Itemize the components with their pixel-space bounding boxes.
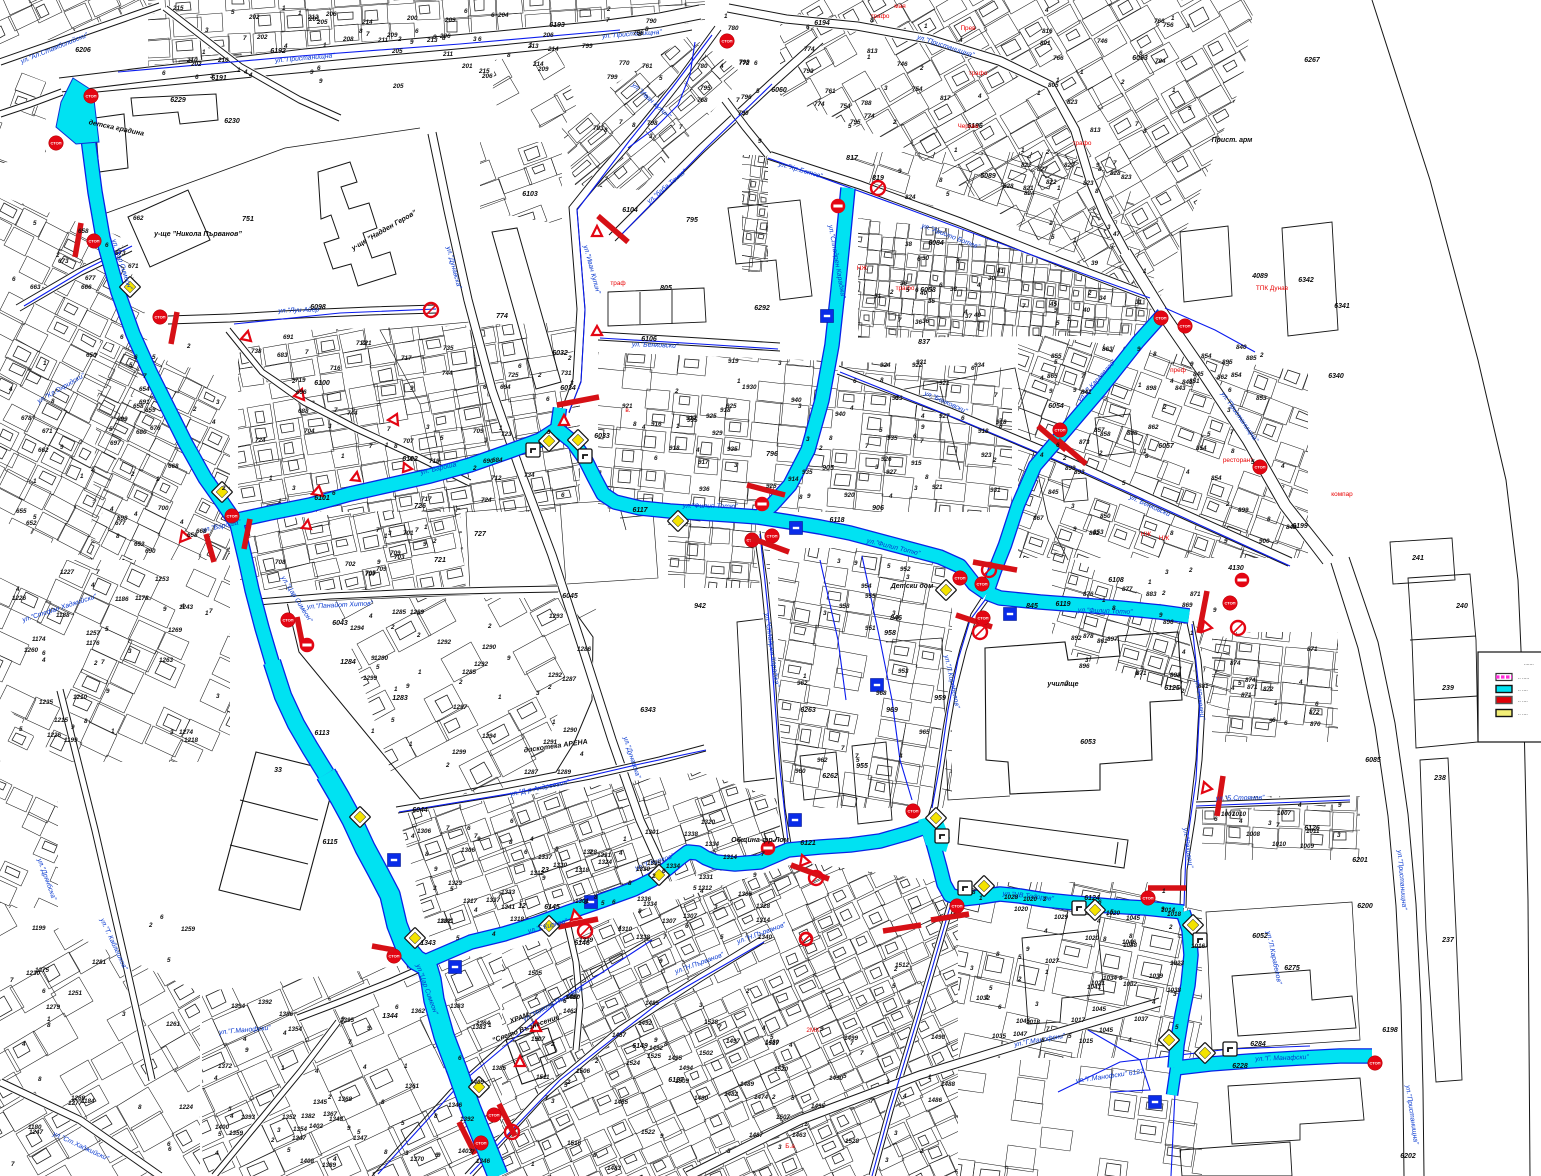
svg-text:798: 798 xyxy=(739,59,750,66)
svg-text:796: 796 xyxy=(766,451,778,458)
svg-text:8: 8 xyxy=(604,127,608,134)
svg-text:2: 2 xyxy=(55,252,60,259)
svg-text:СТОП: СТОП xyxy=(766,534,777,539)
svg-text:4: 4 xyxy=(8,386,13,393)
svg-text:6033: 6033 xyxy=(594,433,610,440)
svg-text:СТОП: СТОП xyxy=(88,239,99,244)
svg-text:1: 1 xyxy=(1171,15,1175,22)
svg-text:211: 211 xyxy=(442,51,454,58)
svg-text:761: 761 xyxy=(825,88,836,95)
svg-text:6034: 6034 xyxy=(560,385,576,392)
svg-text:690: 690 xyxy=(145,548,156,555)
svg-text:654: 654 xyxy=(139,386,150,393)
svg-text:2: 2 xyxy=(919,65,924,72)
svg-text:СТОП: СТОП xyxy=(1254,465,1265,470)
svg-text:697: 697 xyxy=(110,440,121,447)
svg-text:3: 3 xyxy=(649,133,653,140)
svg-text:компар: компар xyxy=(1331,491,1353,498)
svg-text:5: 5 xyxy=(756,88,760,95)
svg-text:6263: 6263 xyxy=(800,707,816,714)
svg-text:СТОП: СТОП xyxy=(977,616,988,621)
svg-text:1: 1 xyxy=(156,476,160,483)
svg-text:ресторант: ресторант xyxy=(1223,457,1253,464)
svg-text:774: 774 xyxy=(804,46,815,53)
svg-text:6101: 6101 xyxy=(314,495,330,502)
svg-text:239: 239 xyxy=(1441,685,1454,692)
svg-text:6044: 6044 xyxy=(412,807,428,814)
svg-text:6343: 6343 xyxy=(640,707,656,714)
svg-text:756: 756 xyxy=(1163,22,1174,29)
svg-text:1: 1 xyxy=(237,67,241,74)
svg-text:215: 215 xyxy=(172,5,184,12)
svg-text:НЖ: НЖ xyxy=(1141,531,1152,538)
svg-text:Детски дом: Детски дом xyxy=(890,582,934,590)
svg-text:6113: 6113 xyxy=(314,730,329,737)
svg-text:6084: 6084 xyxy=(928,240,944,247)
svg-text:8: 8 xyxy=(638,31,642,38)
svg-text:845: 845 xyxy=(1026,603,1038,610)
svg-text:795: 795 xyxy=(700,85,711,92)
svg-text:816: 816 xyxy=(1042,28,1053,35)
svg-text:5: 5 xyxy=(129,362,133,369)
svg-text:33: 33 xyxy=(274,767,282,774)
svg-text:СТОП: СТОП xyxy=(1179,324,1190,329)
svg-text:6043: 6043 xyxy=(332,620,348,627)
svg-text:4: 4 xyxy=(977,93,982,100)
svg-text:2: 2 xyxy=(130,471,135,478)
svg-text:ТПК Дунав: ТПК Дунав xyxy=(1256,285,1289,292)
svg-text:училище: училище xyxy=(1046,681,1078,688)
svg-text:НЖ: НЖ xyxy=(857,265,868,272)
svg-text:Черква: Черква xyxy=(957,123,978,130)
svg-text:6292: 6292 xyxy=(754,305,770,312)
svg-text:6085: 6085 xyxy=(1365,757,1381,764)
svg-text:768: 768 xyxy=(697,97,708,104)
svg-text:7: 7 xyxy=(243,35,247,42)
svg-text:8: 8 xyxy=(645,26,649,33)
svg-text:8: 8 xyxy=(116,533,120,540)
svg-text:6341: 6341 xyxy=(1334,303,1350,310)
svg-text:795: 795 xyxy=(850,119,861,126)
svg-text:6121: 6121 xyxy=(800,840,816,847)
svg-text:6100: 6100 xyxy=(314,380,330,387)
svg-text:652: 652 xyxy=(26,520,37,527)
svg-text:4: 4 xyxy=(248,72,253,79)
svg-text:4: 4 xyxy=(109,506,114,513)
svg-text:2: 2 xyxy=(221,485,226,492)
svg-text:6032: 6032 xyxy=(552,350,568,357)
svg-text:202: 202 xyxy=(248,14,260,21)
svg-text:7: 7 xyxy=(619,119,623,126)
svg-text:СТОП: СТОП xyxy=(976,582,987,587)
svg-text:5: 5 xyxy=(109,426,113,433)
svg-text:6057: 6057 xyxy=(1158,443,1175,450)
svg-text:9: 9 xyxy=(310,69,314,76)
svg-text:СТОП: СТОП xyxy=(721,39,732,44)
svg-text:1: 1 xyxy=(867,54,871,61)
svg-text:700: 700 xyxy=(158,505,169,512)
svg-text:5: 5 xyxy=(231,9,235,16)
svg-text:906: 906 xyxy=(872,505,884,512)
svg-text:9: 9 xyxy=(410,39,414,46)
svg-text:СТОП: СТОП xyxy=(488,1113,499,1118)
svg-text:817: 817 xyxy=(940,95,951,102)
svg-text:6193: 6193 xyxy=(549,22,565,29)
svg-text:6: 6 xyxy=(162,70,166,77)
svg-text:655: 655 xyxy=(16,508,27,515)
svg-text:3: 3 xyxy=(884,85,888,92)
svg-text:673: 673 xyxy=(58,258,69,265)
svg-text:677: 677 xyxy=(85,275,96,282)
svg-text:662: 662 xyxy=(38,447,49,454)
svg-text:СТОП: СТОП xyxy=(388,954,399,959)
svg-text:траф: траф xyxy=(610,280,625,287)
svg-text:2: 2 xyxy=(90,466,95,473)
svg-text:5: 5 xyxy=(33,514,37,521)
svg-text:793: 793 xyxy=(803,68,814,75)
svg-text:799: 799 xyxy=(607,74,618,81)
svg-text:2: 2 xyxy=(892,119,897,126)
svg-text:837: 837 xyxy=(918,339,931,346)
svg-text:6115: 6115 xyxy=(322,839,337,846)
svg-text:2: 2 xyxy=(397,36,402,43)
svg-text:668: 668 xyxy=(168,463,179,470)
svg-text:4: 4 xyxy=(179,519,184,526)
svg-text:2: 2 xyxy=(1120,79,1125,86)
svg-text:4: 4 xyxy=(133,511,138,518)
svg-text:200: 200 xyxy=(406,15,418,22)
svg-text:6: 6 xyxy=(1139,50,1143,57)
svg-text:805: 805 xyxy=(660,285,672,292)
svg-text:1: 1 xyxy=(1172,87,1176,94)
svg-text:761: 761 xyxy=(642,63,653,70)
svg-text:9: 9 xyxy=(758,138,762,145)
svg-text:6: 6 xyxy=(754,60,758,67)
svg-text:240: 240 xyxy=(1455,603,1468,610)
svg-text:676: 676 xyxy=(150,425,161,432)
svg-text:6: 6 xyxy=(120,334,124,341)
svg-text:6228: 6228 xyxy=(1232,1063,1248,1070)
svg-text:8: 8 xyxy=(870,17,874,24)
svg-text:6284: 6284 xyxy=(1250,1041,1266,1048)
svg-text:12: 12 xyxy=(518,903,526,910)
svg-text:202: 202 xyxy=(256,34,268,41)
svg-text:трафо: трафо xyxy=(1073,140,1092,147)
svg-text:6103: 6103 xyxy=(522,191,538,198)
svg-text:780: 780 xyxy=(728,25,739,32)
svg-text:726: 726 xyxy=(414,503,426,510)
svg-text:663: 663 xyxy=(30,284,41,291)
svg-text:6198: 6198 xyxy=(1382,1027,1398,1034)
svg-text:969: 969 xyxy=(886,707,898,714)
svg-text:СТОП: СТОП xyxy=(1155,316,1166,321)
svg-text:5: 5 xyxy=(33,220,37,227)
svg-text:6149: 6149 xyxy=(632,1043,648,1050)
svg-text:774: 774 xyxy=(496,313,508,320)
svg-text:6: 6 xyxy=(12,276,16,283)
svg-text:6118: 6118 xyxy=(829,517,844,524)
svg-text:6191: 6191 xyxy=(211,75,227,82)
svg-text:658: 658 xyxy=(78,228,89,235)
svg-text:СТОП: СТОП xyxy=(1054,428,1065,433)
svg-text:774: 774 xyxy=(814,101,825,108)
svg-text:6145: 6145 xyxy=(544,904,560,911)
svg-text:6106: 6106 xyxy=(641,336,657,343)
svg-text:5: 5 xyxy=(1188,105,1192,112)
svg-text:Прист. арм: Прист. арм xyxy=(1212,137,1254,144)
svg-text:214: 214 xyxy=(361,19,373,26)
svg-text:770: 770 xyxy=(619,60,630,67)
svg-text:6052: 6052 xyxy=(1252,933,1268,940)
svg-text:754: 754 xyxy=(912,86,923,93)
svg-text:799: 799 xyxy=(582,43,593,50)
svg-text:727: 727 xyxy=(474,531,487,538)
svg-text:1: 1 xyxy=(529,42,533,49)
svg-text:мая: мая xyxy=(894,3,906,10)
svg-text:7: 7 xyxy=(736,97,740,104)
svg-text:7: 7 xyxy=(606,17,610,24)
svg-text:668: 668 xyxy=(196,528,207,535)
svg-text:1: 1 xyxy=(1056,77,1060,84)
svg-text:1: 1 xyxy=(43,360,47,367)
svg-text:6053: 6053 xyxy=(1080,739,1096,746)
svg-text:2МХ: 2МХ xyxy=(806,1027,820,1034)
svg-text:1343: 1343 xyxy=(420,940,436,947)
svg-text:6200: 6200 xyxy=(1357,903,1373,910)
svg-text:955: 955 xyxy=(856,763,868,770)
svg-text:959: 959 xyxy=(934,695,946,702)
svg-text:8: 8 xyxy=(632,122,636,129)
svg-text:Б.а: Б.а xyxy=(785,1143,795,1150)
svg-text:1: 1 xyxy=(1080,69,1084,76)
svg-text:6340: 6340 xyxy=(1328,373,1344,380)
svg-text:СТОП: СТОП xyxy=(951,904,962,909)
svg-text:3: 3 xyxy=(210,73,214,80)
svg-text:958: 958 xyxy=(884,630,896,637)
svg-text:6098: 6098 xyxy=(310,304,326,311)
svg-text:754: 754 xyxy=(840,103,851,110)
svg-text:5: 5 xyxy=(659,75,663,82)
svg-text:6262: 6262 xyxy=(822,773,838,780)
svg-text:4130: 4130 xyxy=(1227,565,1244,572)
svg-text:798: 798 xyxy=(647,120,658,127)
svg-text:4: 4 xyxy=(1044,7,1049,14)
svg-text:205: 205 xyxy=(392,83,404,90)
svg-text:3: 3 xyxy=(1186,23,1190,30)
svg-text:трафо: трафо xyxy=(969,70,988,77)
svg-text:2: 2 xyxy=(192,406,197,413)
svg-text:Община-фр.Лом: Община-фр.Лом xyxy=(731,836,790,844)
svg-text:5089: 5089 xyxy=(980,173,996,180)
svg-text:658: 658 xyxy=(187,532,198,539)
svg-text:699: 699 xyxy=(117,416,128,423)
svg-text:819: 819 xyxy=(872,175,884,182)
svg-text:721: 721 xyxy=(434,557,446,564)
svg-text:817: 817 xyxy=(846,155,859,162)
svg-text:7: 7 xyxy=(1135,121,1139,128)
svg-text:790: 790 xyxy=(738,110,749,117)
svg-text:241: 241 xyxy=(1411,555,1424,562)
svg-text:4: 4 xyxy=(243,69,248,76)
svg-text:214: 214 xyxy=(547,46,559,53)
svg-text:784: 784 xyxy=(1155,58,1166,65)
svg-text:4089: 4089 xyxy=(1251,273,1268,280)
svg-text:7: 7 xyxy=(94,353,98,360)
svg-text:813: 813 xyxy=(1090,127,1101,134)
svg-text:2: 2 xyxy=(186,343,191,350)
svg-text:6108: 6108 xyxy=(1108,577,1124,584)
svg-text:СТОП: СТОП xyxy=(1369,1061,1380,1066)
svg-text:662: 662 xyxy=(133,215,144,222)
svg-text:у-ще ”Никола Първанов”: у-ще ”Никола Първанов” xyxy=(153,231,242,238)
svg-text:795: 795 xyxy=(686,217,698,224)
svg-text:6045: 6045 xyxy=(562,593,578,600)
svg-text:942: 942 xyxy=(694,603,706,610)
svg-text:6275: 6275 xyxy=(1284,965,1300,972)
svg-text:9: 9 xyxy=(60,444,64,451)
svg-text:905: 905 xyxy=(822,465,834,472)
svg-text:СТОП: СТОП xyxy=(1224,601,1235,606)
svg-text:680: 680 xyxy=(136,429,147,436)
svg-text:788: 788 xyxy=(861,100,872,107)
svg-text:1283: 1283 xyxy=(392,695,408,702)
svg-text:6: 6 xyxy=(134,354,138,361)
svg-text:6230: 6230 xyxy=(224,118,240,125)
svg-text:746: 746 xyxy=(1097,38,1108,45)
svg-text:СТОП: СТОП xyxy=(226,514,237,519)
svg-text:796: 796 xyxy=(741,94,752,101)
svg-text:790: 790 xyxy=(646,18,657,25)
svg-text:1: 1 xyxy=(724,13,728,20)
svg-text:преф: преф xyxy=(1170,367,1186,374)
svg-text:6104: 6104 xyxy=(622,207,638,214)
svg-text:238: 238 xyxy=(1433,775,1446,782)
svg-text:4: 4 xyxy=(211,419,216,426)
svg-text:СТОП: СТОП xyxy=(475,1141,486,1146)
svg-text:6: 6 xyxy=(491,12,495,19)
svg-text:СТОП: СТОП xyxy=(50,141,61,146)
svg-text:Прев: Прев xyxy=(960,25,976,32)
svg-text:СТОП: СТОП xyxy=(907,809,918,814)
svg-text:237: 237 xyxy=(1441,937,1455,944)
svg-text:6202: 6202 xyxy=(1400,1153,1416,1160)
svg-text:1284: 1284 xyxy=(340,659,356,666)
svg-text:2: 2 xyxy=(606,6,611,13)
svg-text:6117: 6117 xyxy=(632,507,648,514)
svg-text:7: 7 xyxy=(143,373,147,380)
svg-text:783: 783 xyxy=(593,125,604,132)
svg-text:4: 4 xyxy=(283,43,288,50)
svg-text:6125: 6125 xyxy=(1164,685,1180,692)
svg-text:8: 8 xyxy=(51,398,55,405)
svg-text:6119: 6119 xyxy=(1055,601,1070,608)
svg-text:6060: 6060 xyxy=(771,87,787,94)
svg-text:6054: 6054 xyxy=(1048,403,1064,410)
svg-text:6: 6 xyxy=(806,24,810,31)
svg-text:208: 208 xyxy=(342,36,354,43)
svg-text:673: 673 xyxy=(115,250,126,257)
svg-text:823: 823 xyxy=(1067,99,1078,106)
svg-text:СТОП: СТОП xyxy=(282,618,293,623)
svg-text:6: 6 xyxy=(415,28,419,35)
svg-text:1344: 1344 xyxy=(382,1013,398,1020)
svg-text:6229: 6229 xyxy=(170,97,186,104)
svg-text:774: 774 xyxy=(864,113,875,120)
svg-text:678: 678 xyxy=(21,415,32,422)
svg-text:210: 210 xyxy=(217,57,229,64)
svg-text:5: 5 xyxy=(848,123,852,130)
svg-text:698: 698 xyxy=(117,515,128,522)
svg-text:СТОП: СТОП xyxy=(154,315,165,320)
svg-text:780: 780 xyxy=(697,63,708,70)
svg-text:691: 691 xyxy=(139,399,150,406)
svg-text:751: 751 xyxy=(242,216,254,223)
svg-text:СТОП: СТОП xyxy=(1142,896,1153,901)
svg-text:6267: 6267 xyxy=(1304,57,1321,64)
svg-text:1: 1 xyxy=(1037,90,1041,97)
svg-text:1: 1 xyxy=(80,473,84,480)
svg-text:СТОП: СТОП xyxy=(85,94,96,99)
svg-text:6194: 6194 xyxy=(814,20,830,27)
svg-text:4: 4 xyxy=(719,63,724,70)
svg-text:5: 5 xyxy=(152,354,156,361)
svg-text:6342: 6342 xyxy=(1298,277,1314,284)
svg-text:СТОП: СТОП xyxy=(954,576,965,581)
svg-text:6: 6 xyxy=(105,242,109,249)
svg-text:671: 671 xyxy=(42,428,53,435)
svg-text:1: 1 xyxy=(924,23,928,30)
svg-text:6: 6 xyxy=(317,65,321,72)
svg-text:3: 3 xyxy=(205,27,209,34)
svg-text:6: 6 xyxy=(195,74,199,81)
svg-text:6206: 6206 xyxy=(75,47,91,54)
svg-text:652: 652 xyxy=(134,541,145,548)
svg-text:1: 1 xyxy=(33,478,37,485)
svg-text:801: 801 xyxy=(1040,40,1051,47)
svg-text:6201: 6201 xyxy=(1352,857,1368,864)
svg-text:9: 9 xyxy=(319,78,323,85)
svg-text:659: 659 xyxy=(145,407,156,414)
svg-text:671: 671 xyxy=(128,263,139,270)
svg-text:ул.”Филип Тотю”: ул.”Филип Тотю” xyxy=(682,503,738,511)
svg-text:ул.”Б.Стоянов”: ул.”Б.Стоянов” xyxy=(1215,795,1266,803)
svg-text:206: 206 xyxy=(542,32,554,39)
svg-text:746: 746 xyxy=(897,61,908,68)
svg-text:766: 766 xyxy=(1053,55,1064,62)
svg-text:7: 7 xyxy=(679,124,683,131)
svg-text:8: 8 xyxy=(1143,128,1147,135)
svg-text:666: 666 xyxy=(81,284,92,291)
svg-text:4: 4 xyxy=(958,37,963,44)
svg-text:НЖ: НЖ xyxy=(1159,535,1170,542)
